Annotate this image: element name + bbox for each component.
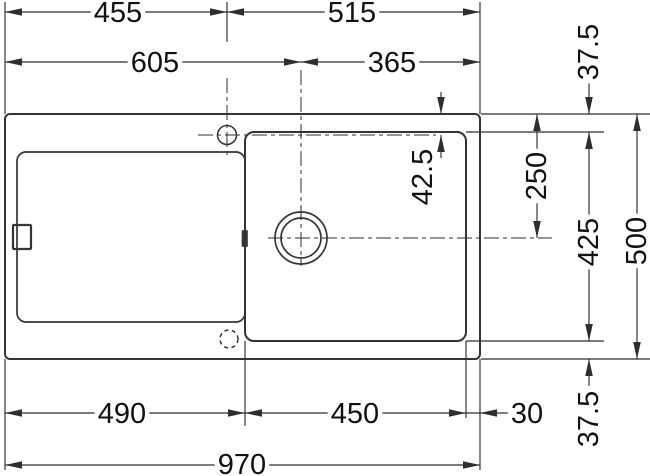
dimension-label: 500	[621, 217, 650, 265]
dimension-label: 365	[368, 47, 416, 79]
dimension-label: 37.5	[573, 391, 605, 447]
dimension-label: 605	[131, 47, 179, 79]
dimension-arrow	[533, 114, 541, 131]
drawing-canvas: 4555156053654904503097037.542.5250425500…	[0, 0, 650, 476]
dimension-arrow	[5, 409, 22, 417]
dimension-arrow	[5, 461, 22, 469]
dimension-label: 425	[573, 218, 605, 266]
dimension-label: 450	[331, 398, 379, 430]
drainboard-outline	[17, 152, 245, 322]
dimension-arrow	[585, 97, 593, 114]
bowl-edge-notch	[243, 231, 248, 246]
dimension-label: 250	[521, 152, 553, 200]
dimension-arrow	[245, 409, 262, 417]
dimension-arrow	[5, 8, 22, 16]
optional-faucet-hole	[220, 330, 238, 348]
dimension-arrow	[463, 461, 480, 469]
dimension-arrow	[463, 58, 480, 66]
dimension-arrow	[449, 409, 466, 417]
dimension-label: 37.5	[573, 24, 605, 80]
dimension-arrow	[585, 359, 593, 376]
dimension-arrow	[284, 58, 301, 66]
dimension-arrow	[228, 409, 245, 417]
dimension-arrow	[301, 58, 318, 66]
dimension-arrow	[437, 97, 445, 114]
dimension-label: 42.5	[407, 149, 439, 205]
dimension-arrow	[633, 114, 641, 131]
dimension-label: 970	[218, 449, 266, 476]
dimension-label: 455	[94, 0, 142, 29]
dimension-label: 30	[511, 398, 543, 430]
dimension-arrow	[633, 342, 641, 359]
dimension-arrow	[5, 58, 22, 66]
dimension-arrow	[463, 8, 480, 16]
dimension-arrow	[533, 221, 541, 238]
dimension-arrow	[585, 132, 593, 149]
dimension-arrow	[227, 8, 244, 16]
dimension-arrow	[585, 324, 593, 341]
dimension-arrow	[480, 409, 497, 417]
dimension-arrow	[210, 8, 227, 16]
sink-technical-drawing: 4555156053654904503097037.542.5250425500…	[0, 0, 650, 476]
overflow-detail	[13, 225, 31, 249]
dimension-label: 515	[328, 0, 376, 29]
dimension-label: 490	[98, 398, 146, 430]
